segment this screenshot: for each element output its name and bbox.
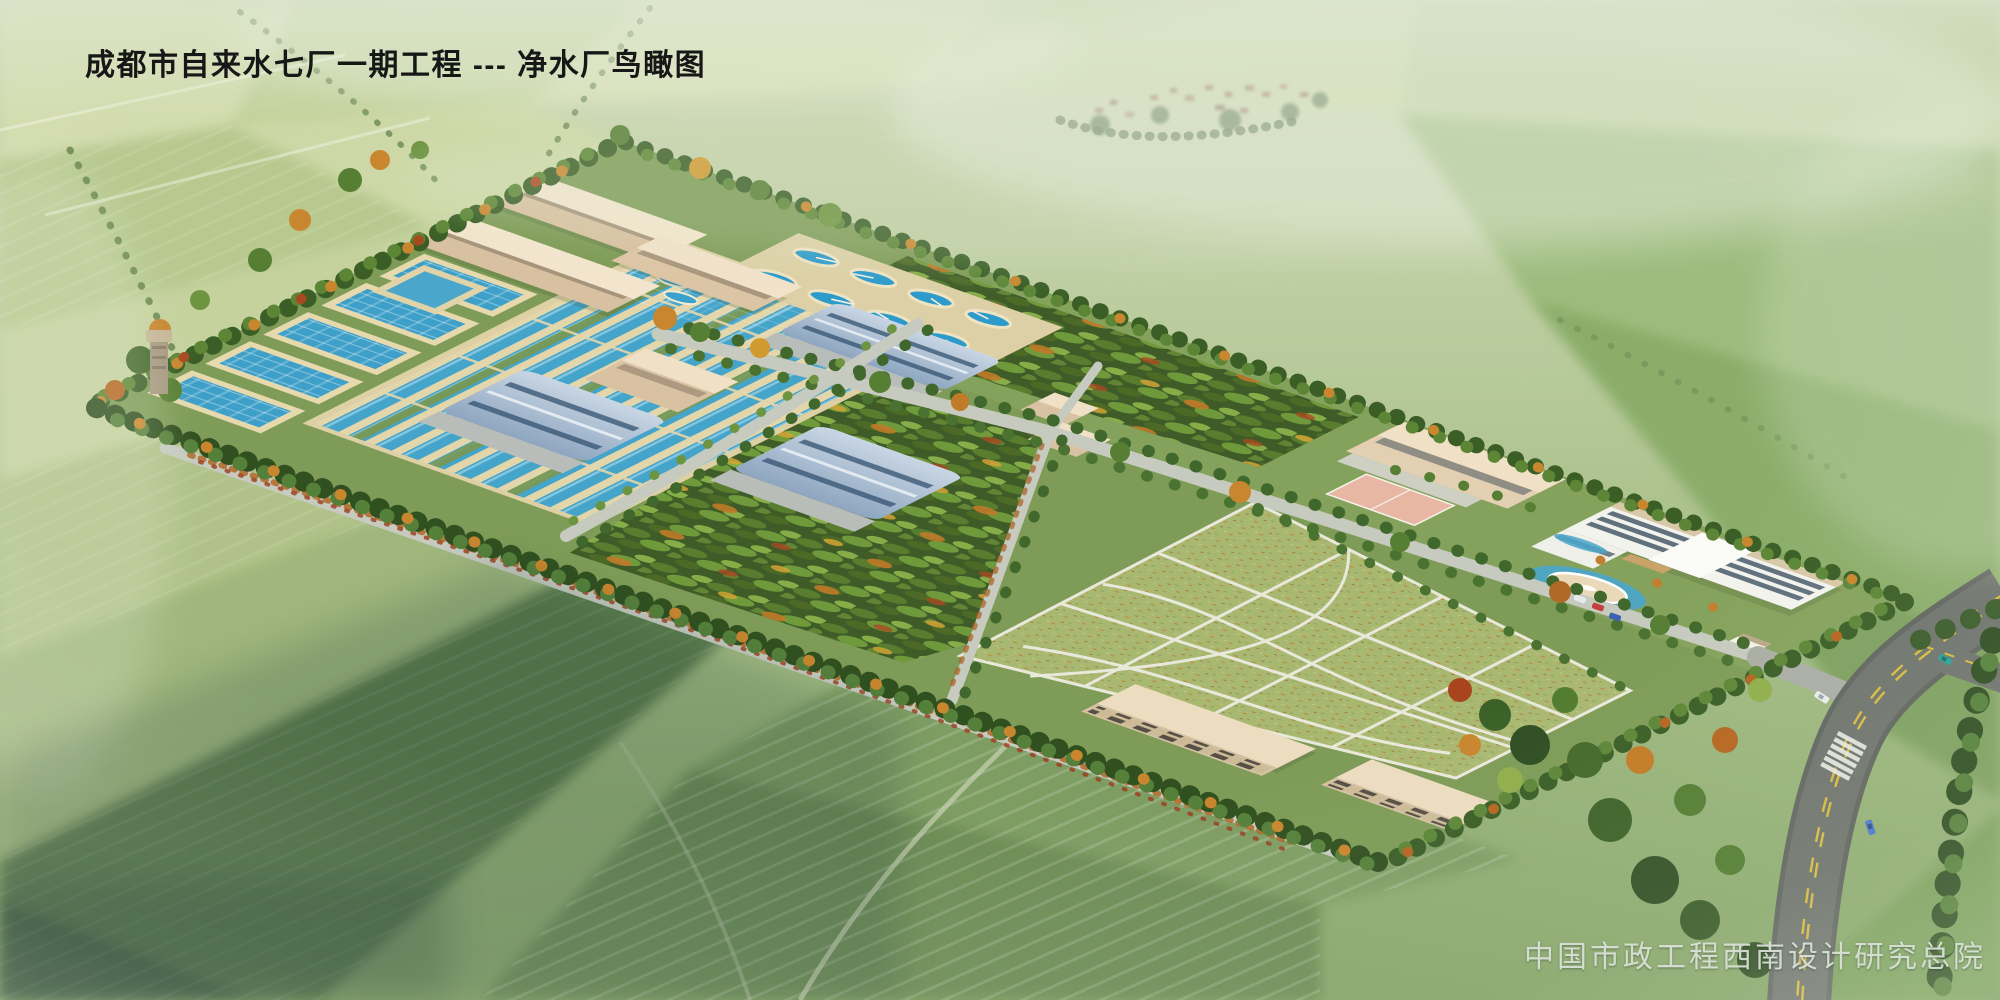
design-institute-credit: 中国市政工程西南设计研究总院	[1524, 932, 1986, 976]
aerial-rendering: 成都市自来水七厂一期工程 --- 净水厂鸟瞰图 中国市政工程西南设计研究总院	[0, 0, 2000, 1000]
page-title: 成都市自来水七厂一期工程 --- 净水厂鸟瞰图	[85, 40, 706, 84]
atmospheric-haze	[0, 0, 2000, 1000]
scene-canvas	[0, 0, 2000, 1000]
